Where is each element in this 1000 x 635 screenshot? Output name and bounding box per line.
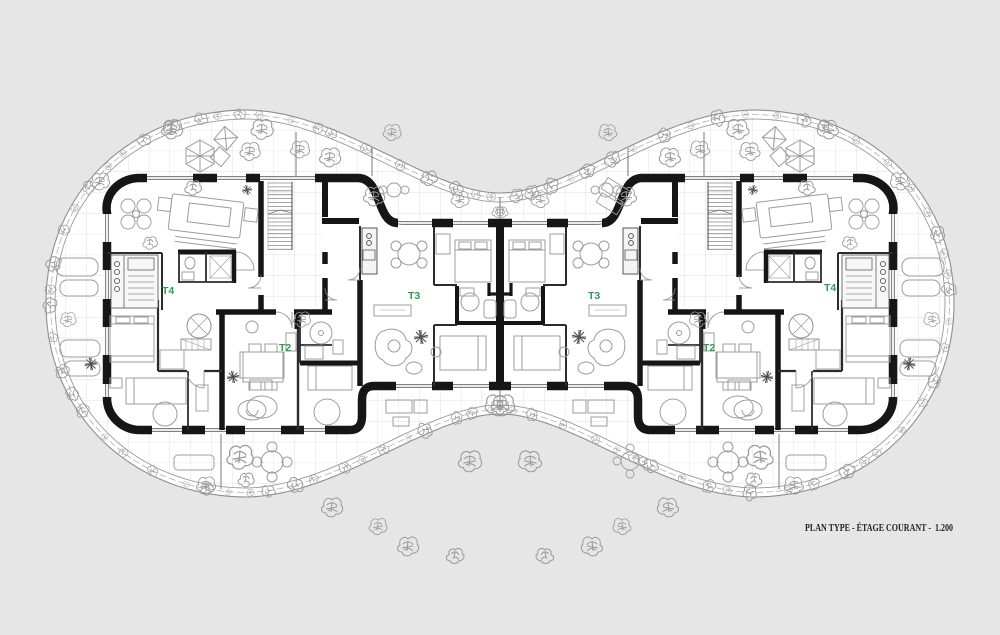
svg-text:T3: T3 — [408, 290, 420, 302]
svg-text:T3: T3 — [588, 290, 600, 302]
svg-text:T4: T4 — [162, 285, 174, 297]
svg-text:T2: T2 — [703, 342, 715, 354]
svg-text:T2: T2 — [279, 342, 291, 354]
svg-text:T4: T4 — [824, 282, 836, 294]
svg-text:PLAN TYPE - ÉTAGE COURANT - 1: PLAN TYPE - ÉTAGE COURANT - 1.200 — [805, 522, 953, 534]
